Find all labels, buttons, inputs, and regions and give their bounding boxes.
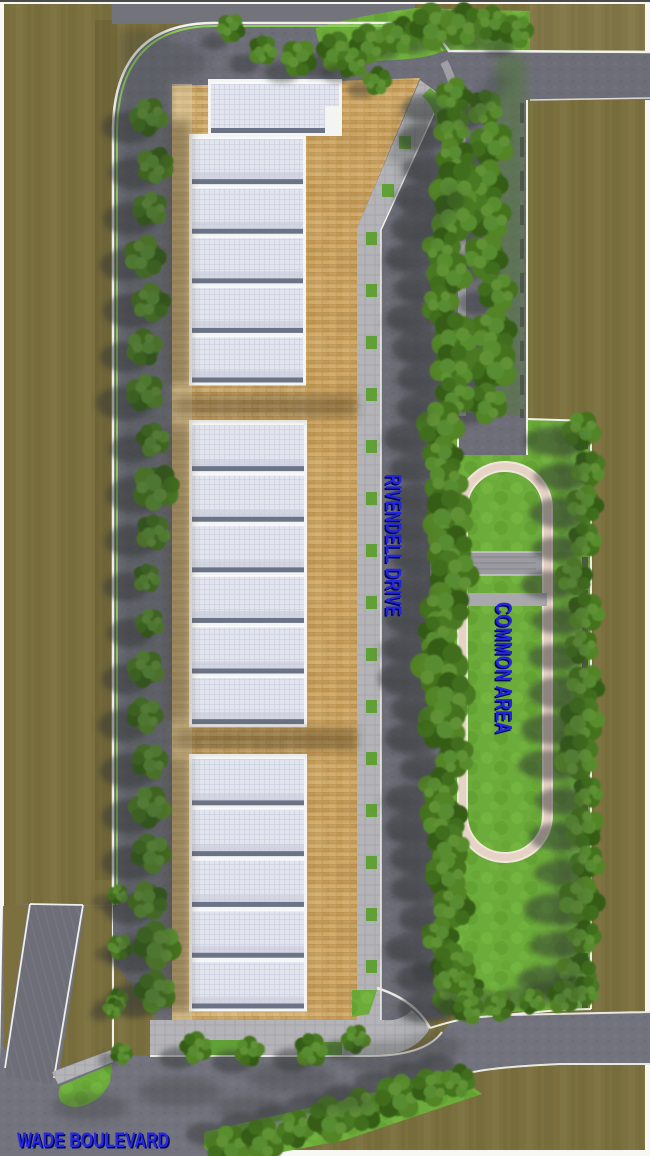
svg-text:WADE BOULEVARD: WADE BOULEVARD [17, 1129, 169, 1152]
svg-text:RIVENDELL DRIVE: RIVENDELL DRIVE [381, 474, 406, 616]
svg-text:COMMON AREA: COMMON AREA [491, 602, 517, 734]
